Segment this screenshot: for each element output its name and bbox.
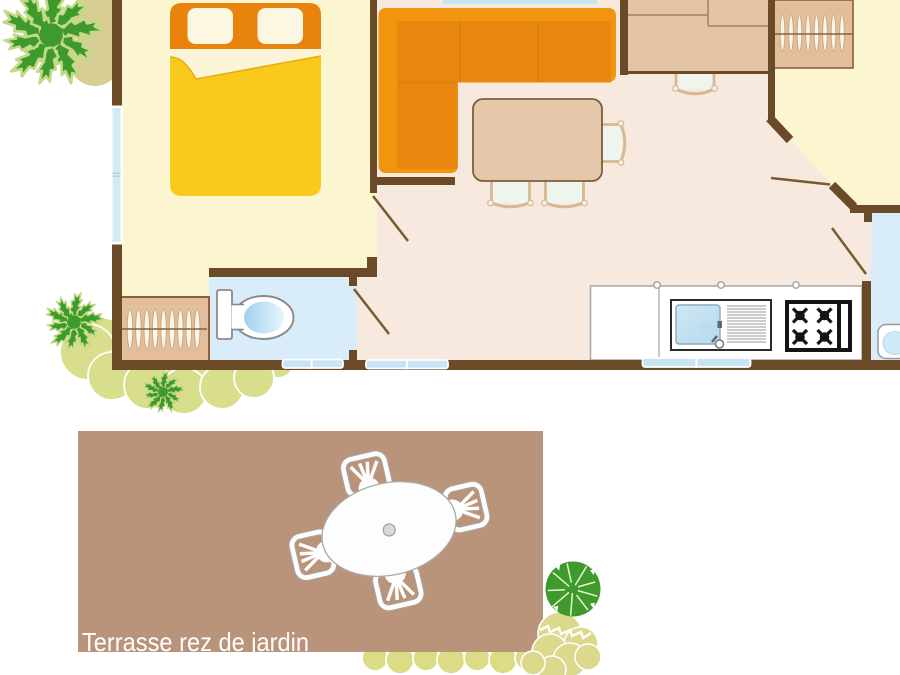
svg-text:Terrasse rez de jardin: Terrasse rez de jardin	[82, 627, 309, 657]
